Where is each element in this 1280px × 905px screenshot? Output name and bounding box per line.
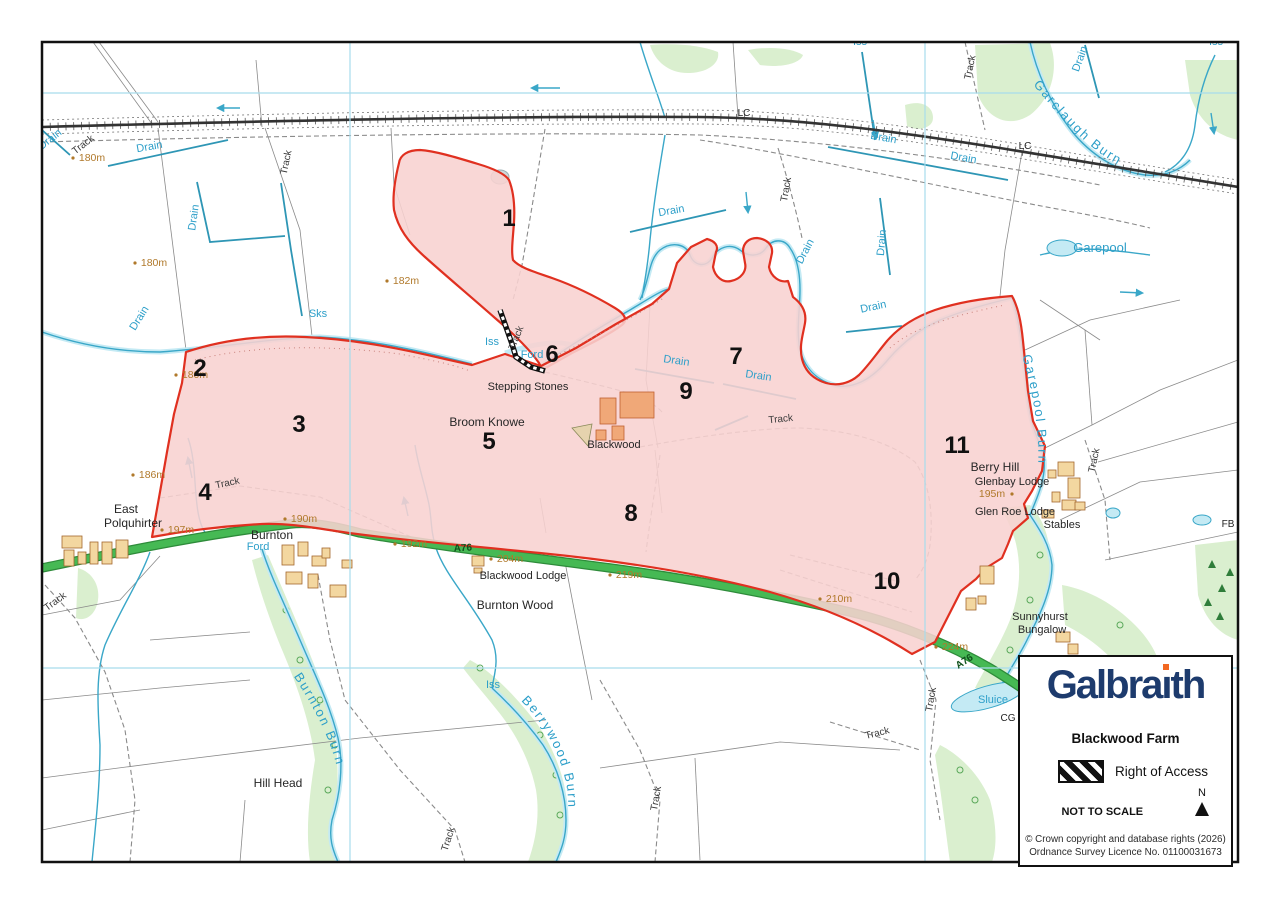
- map-label-blackwood-lodge: Blackwood Lodge: [480, 570, 567, 582]
- map-label-blackwood: Blackwood: [587, 439, 640, 451]
- map-label-sks: Sks: [309, 308, 328, 320]
- parcel-number-4: 4: [198, 479, 212, 506]
- spot-height-dot: [174, 373, 177, 376]
- map-label-204m: 204m: [497, 553, 524, 565]
- spot-height-dot: [818, 597, 821, 600]
- map-label-fb: FB: [1222, 519, 1235, 530]
- map-label-iss: Iss: [485, 336, 500, 348]
- spot-height-dot: [1010, 492, 1013, 495]
- map-label-iss: Iss: [486, 679, 501, 691]
- parcel-number-11: 11: [944, 432, 969, 459]
- map-label-180m: 180m: [141, 257, 168, 269]
- map-label-a76: A76: [453, 543, 472, 555]
- galbraith-logo: Galbraıth: [1020, 663, 1231, 708]
- map-label-ford: Ford: [521, 349, 544, 361]
- parcel-number-2: 2: [193, 355, 206, 382]
- spot-height-dot: [71, 156, 74, 159]
- spot-height-dot: [133, 261, 136, 264]
- map-page: DrainDrainDrainDrainIssIssDrainDrainDrai…: [0, 0, 1280, 905]
- legend-title: Blackwood Farm: [1020, 731, 1231, 746]
- map-label-stables: Stables: [1044, 519, 1081, 531]
- right-of-access-label: Right of Access: [1115, 764, 1208, 779]
- parcel-number-10: 10: [874, 568, 901, 595]
- spot-height-dot: [385, 279, 388, 282]
- legend-box: Galbraıth Blackwood Farm Right of Access…: [1018, 655, 1233, 867]
- map-label-186m: 186m: [139, 469, 166, 481]
- parcel-number-9: 9: [679, 378, 692, 405]
- map-label-broom-knowe: Broom Knowe: [449, 415, 525, 429]
- map-label-180m: 180m: [79, 152, 106, 164]
- map-label-lc: LC: [738, 108, 751, 119]
- map-label-210m: 210m: [826, 593, 853, 605]
- map-label-190m: 190m: [291, 513, 318, 525]
- map-label-sluice: Sluice: [978, 694, 1008, 706]
- map-label-burnton: Burnton: [251, 528, 293, 542]
- map-label-glenbay-lodge: Glenbay Lodge: [975, 476, 1050, 488]
- map-label-192m: 192m: [401, 538, 428, 550]
- spot-height-dot: [608, 573, 611, 576]
- map-label-stepping-stones: Stepping Stones: [488, 381, 569, 393]
- spot-height-dot: [393, 542, 396, 545]
- parcel-number-7: 7: [729, 343, 742, 370]
- parcel-number-5: 5: [482, 428, 495, 455]
- legend-key-row: Right of Access: [1058, 760, 1208, 783]
- copyright-line2: Ordnance Survey Licence No. 01100031673: [1020, 846, 1231, 859]
- copyright-line1: © Crown copyright and database rights (2…: [1020, 833, 1231, 846]
- map-label-polquhirter: Polquhirter: [104, 516, 162, 530]
- spot-height-dot: [131, 473, 134, 476]
- north-arrow: N ▲: [1187, 787, 1217, 819]
- map-label-bungalow: Bungalow: [1018, 624, 1066, 636]
- map-label-sunnyhurst: Sunnyhurst: [1012, 611, 1068, 623]
- map-label-182m: 182m: [393, 275, 420, 287]
- spot-height-dot: [489, 557, 492, 560]
- map-label-cg: CG: [1001, 713, 1016, 724]
- parcel-number-8: 8: [624, 500, 637, 527]
- map-label-glen-roe-lodge: Glen Roe Lodge: [975, 506, 1055, 518]
- map-label-lc: LC: [1019, 141, 1032, 152]
- north-arrow-icon: ▲: [1187, 799, 1217, 819]
- map-label-garepool: Garepool: [1073, 240, 1127, 255]
- map-label-hill-head: Hill Head: [254, 776, 303, 790]
- not-to-scale-label: NOT TO SCALE: [1020, 806, 1185, 818]
- map-label-224m: 224m: [942, 641, 969, 653]
- map-label-ford: Ford: [247, 541, 270, 553]
- map-label-219m: 219m: [616, 569, 643, 581]
- map-label-burnton-wood: Burnton Wood: [477, 598, 554, 612]
- map-label-drain: Drain: [875, 229, 889, 256]
- parcel-number-3: 3: [292, 411, 305, 438]
- spot-height-dot: [160, 528, 163, 531]
- spot-height-dot: [283, 517, 286, 520]
- map-label-east: East: [114, 502, 139, 516]
- parcel-number-6: 6: [545, 341, 558, 368]
- right-of-access-swatch: [1058, 760, 1104, 783]
- map-label-197m: 197m: [168, 524, 195, 536]
- copyright-text: © Crown copyright and database rights (2…: [1020, 833, 1231, 859]
- map-label-berry-hill: Berry Hill: [971, 460, 1020, 474]
- spot-height-dot: [934, 645, 937, 648]
- map-label-195m: 195m: [979, 488, 1006, 500]
- parcel-number-1: 1: [502, 205, 515, 232]
